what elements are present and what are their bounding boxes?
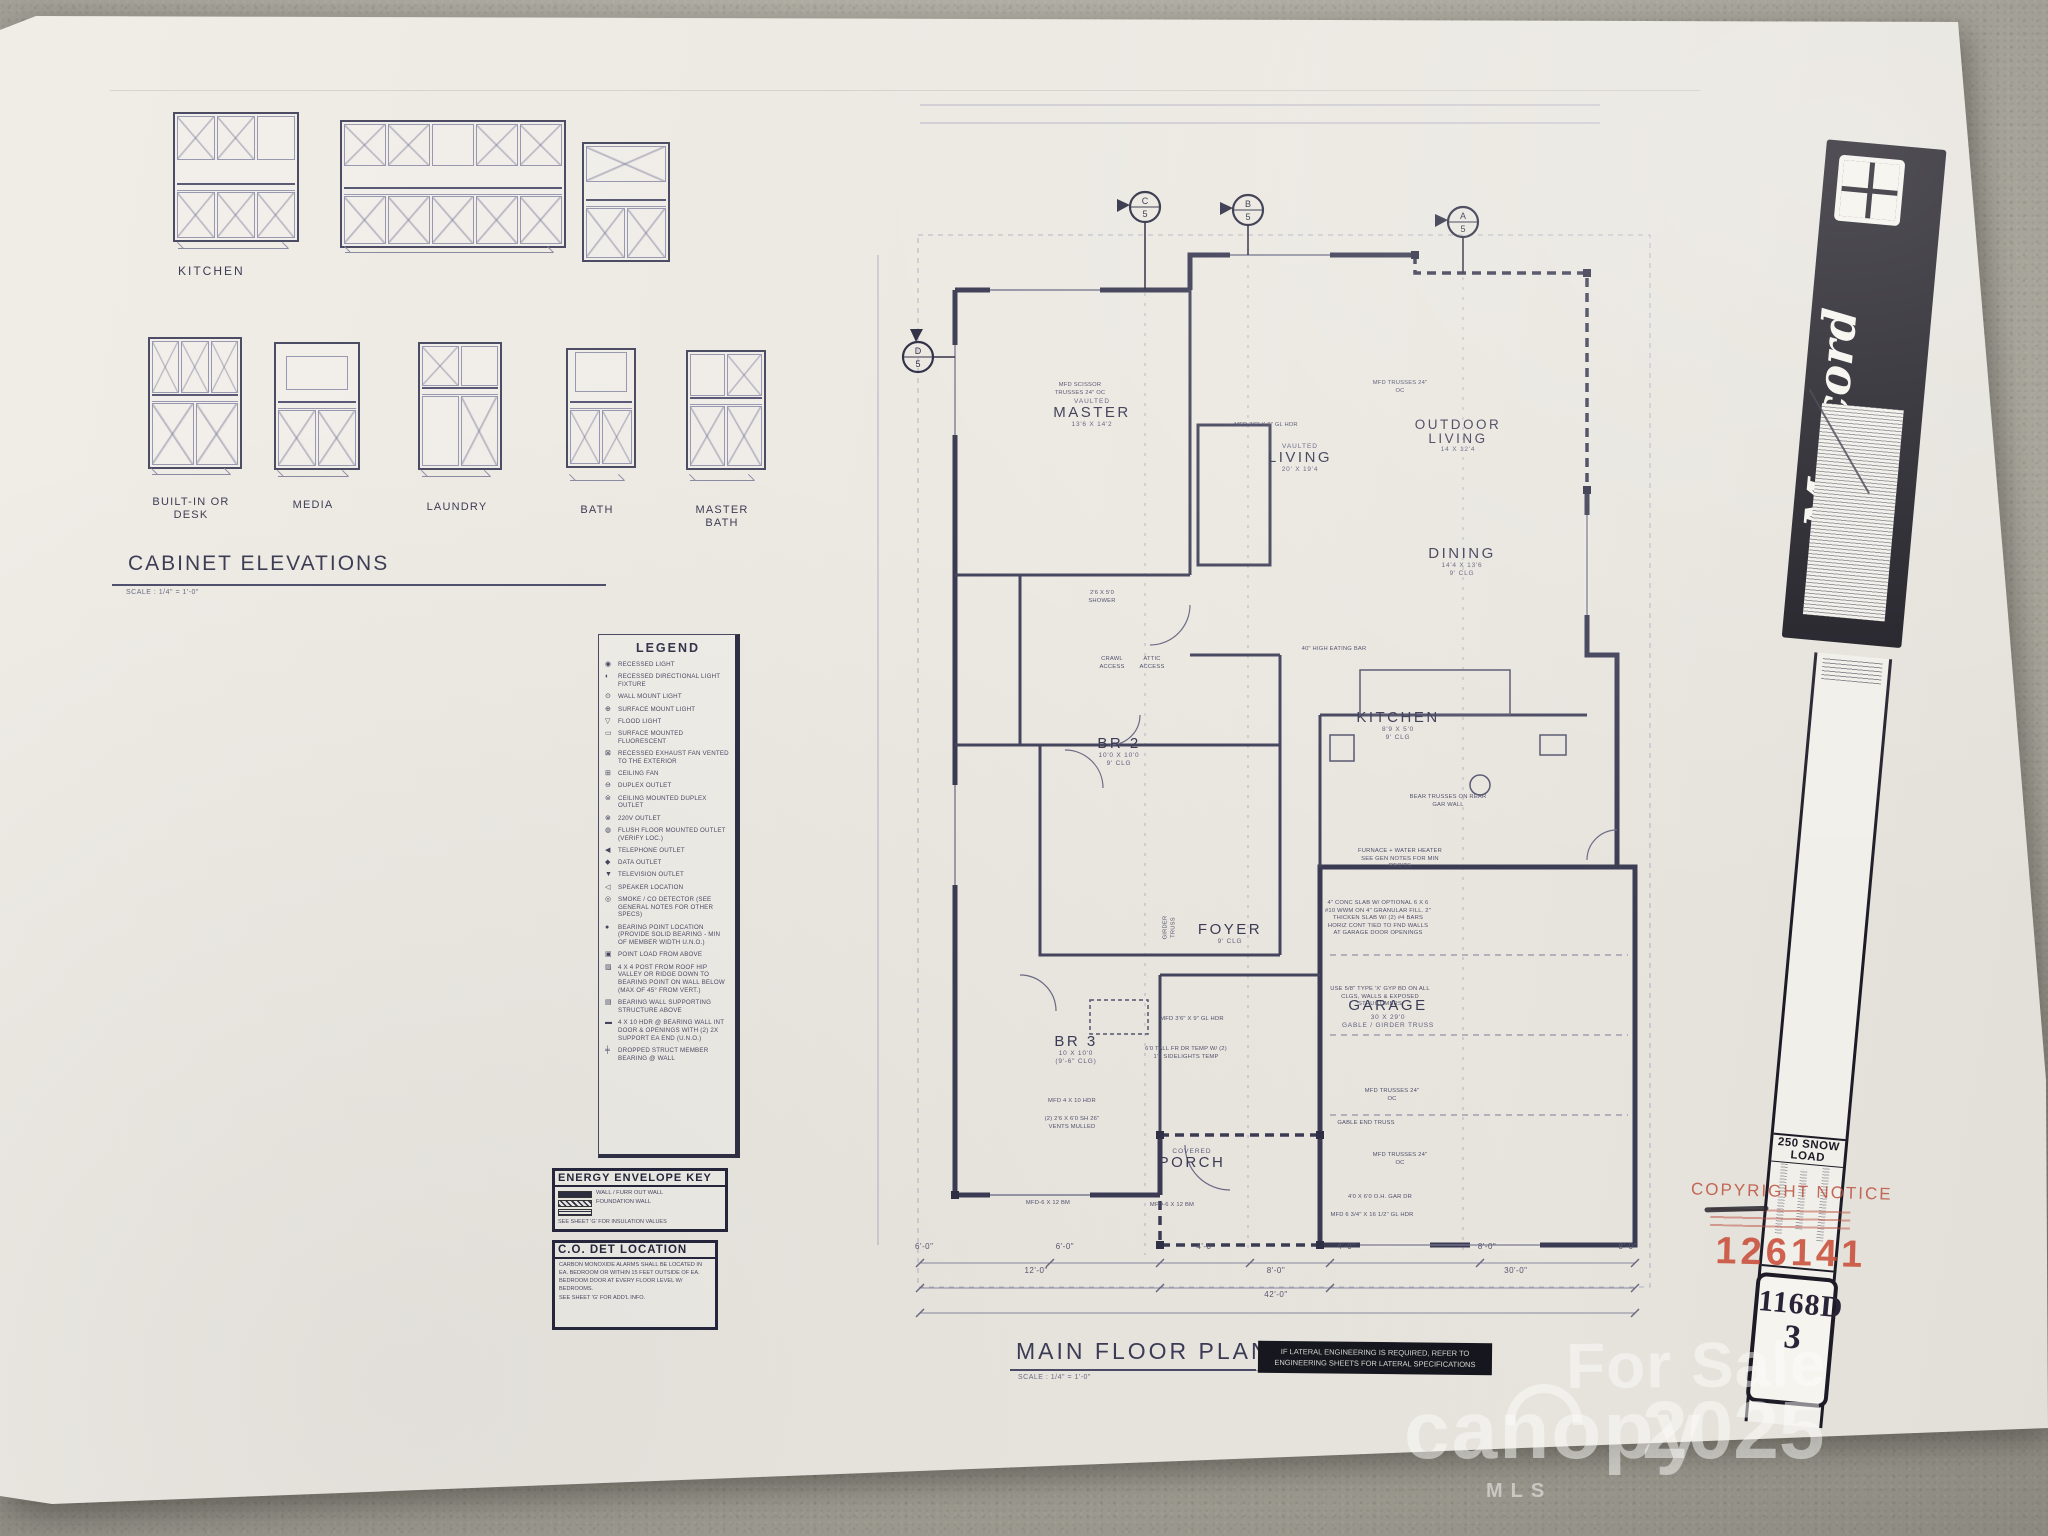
room-label-dining: DINING 14'4 X 13'6 9' CLG: [1428, 546, 1496, 579]
plan-annotation: MFD TRUSSES 24" OC: [1369, 380, 1431, 395]
cabinet-elevations-underline: [112, 584, 606, 586]
grid-bubble-letter: B: [1245, 199, 1251, 209]
dimension-line: [690, 480, 754, 481]
legend-symbol-icon: ◆: [605, 859, 618, 867]
bath-label: BATH: [562, 504, 632, 517]
cabinet-door: [344, 124, 386, 166]
window-pane: [1870, 193, 1898, 221]
legend-item: ⊙ WALL MOUNT LIGHT: [605, 693, 731, 701]
plan-annotation: 6'0 TALL FR DR TEMP W/ (2) 1'0 SIDELIGHT…: [1145, 1046, 1227, 1061]
cabinet-door: [432, 196, 474, 244]
vanity-door: [690, 406, 725, 466]
legend-item-label: DUPLEX OUTLET: [618, 782, 672, 790]
legend-item-label: TELEVISION OUTLET: [618, 871, 684, 879]
legend-item-label: RECESSED DIRECTIONAL LIGHT FIXTURE: [618, 673, 731, 689]
master-bath-label: MASTER BATH: [678, 504, 766, 529]
legend-item-label: DATA OUTLET: [618, 859, 662, 867]
legend-symbol-icon: ▼: [605, 871, 618, 879]
dimension-row-1: 6'-0"6'-0"4'-0"4'-0"8'-0"8'-0": [915, 1242, 1637, 1251]
cabinet-door: [422, 346, 459, 386]
window-pane: [1872, 163, 1900, 191]
dimension-row-2: 12'-0"8'-0"30'-0": [915, 1266, 1637, 1275]
legend-symbol-icon: ▨: [605, 964, 618, 995]
legend-item-label: TELEPHONE OUTLET: [618, 847, 685, 855]
plan-annotation: 2'6 X 5'0 SHOWER: [1076, 590, 1128, 605]
plan-annotation: CRAWL ACCESS: [1091, 656, 1133, 671]
legend-item: ◐ RECESSED DIRECTIONAL LIGHT FIXTURE: [605, 673, 731, 689]
window-logo-icon: [1834, 155, 1906, 227]
plan-annotation: MFD TRUSSES 24" OC: [1361, 1088, 1423, 1103]
legend-item: ⊠ RECESSED EXHAUST FAN VENTED TO THE EXT…: [605, 750, 731, 766]
legend-item-label: SPEAKER LOCATION: [618, 884, 683, 892]
cabinet-door: [520, 196, 562, 244]
plan-annotation: BEAR TRUSSES ON REAR GAR WALL: [1407, 794, 1489, 809]
window-pane: [1839, 190, 1867, 218]
legend-item-label: BEARING WALL SUPPORTING STRUCTURE ABOVE: [618, 999, 731, 1015]
legend-item: ◍ FLUSH FLOOR MOUNTED OUTLET (VERIFY LOC…: [605, 827, 731, 843]
plan-annotation: MFD-6 X 12 BM: [1012, 1200, 1084, 1208]
kitchen-elevation-2: [340, 120, 566, 248]
grid-bubble-number: 5: [1142, 209, 1147, 219]
cabinet-door: [476, 124, 518, 166]
legend-symbol-icon: ╪: [605, 1047, 618, 1063]
legend-symbol-icon: ▽: [605, 718, 618, 726]
cabinet-door: [344, 196, 386, 244]
legend-item-label: RECESSED EXHAUST FAN VENTED TO THE EXTER…: [618, 750, 731, 766]
laundry-elevation: [418, 342, 502, 470]
legend-symbol-icon: ▬: [605, 1019, 618, 1042]
vanity-door: [602, 410, 632, 464]
plan-annotation: USE 5/8" TYPE 'X' GYP BD ON ALL CLGS, WA…: [1330, 986, 1430, 1009]
dimension-label: 12'-0": [1024, 1266, 1047, 1275]
legend-item-label: BEARING POINT LOCATION (PROVIDE SOLID BE…: [618, 924, 731, 947]
cabinet-door: [152, 341, 179, 393]
cabinet-door: [520, 124, 562, 166]
plan-annotation: GABLE END TRUSS: [1324, 1120, 1408, 1128]
dimension-label: 6'-0": [1056, 1242, 1074, 1251]
tv-panel: [286, 356, 348, 390]
legend-item: ⊗ 220V OUTLET: [605, 815, 731, 823]
mirror-panel: [575, 352, 627, 392]
legend-item: ● BEARING POINT LOCATION (PROVIDE SOLID …: [605, 924, 731, 947]
cabinet-door: [217, 192, 255, 238]
legend-item: ▣ POINT LOAD FROM ABOVE: [605, 951, 731, 959]
media-elevation: [274, 342, 360, 470]
legend-item: ⊖ DUPLEX OUTLET: [605, 782, 731, 790]
grid-bubble-letter: C: [1142, 196, 1149, 206]
washer-front: [422, 396, 459, 466]
room-label-porch: COVERED PORCH: [1159, 1148, 1226, 1171]
energy-key-lines: WALL / FURR OUT WALL FOUNDATION WALL: [596, 1189, 663, 1218]
grid-bubble-letter: A: [1460, 211, 1466, 221]
dimension-label: 4'-0": [1196, 1242, 1214, 1251]
legend-symbol-icon: ◉: [605, 661, 618, 669]
lateral-engineering-note: IF LATERAL ENGINEERING IS REQUIRED, REFE…: [1258, 1341, 1492, 1375]
plan-annotation: (2) 2'6 X 6'0 SH 26" VENTS MULLED: [1036, 1116, 1108, 1131]
plan-annotation: 4" CONC SLAB W/ OPTIONAL 6 X 6 #10 WWM O…: [1324, 900, 1432, 938]
legend-item-label: SURFACE MOUNTED FLUORESCENT: [618, 730, 731, 746]
legend-item: ╪ DROPPED STRUCT MEMBER BEARING @ WALL: [605, 1047, 731, 1063]
energy-key-line: FOUNDATION WALL: [596, 1198, 663, 1207]
sheet-top-rule: [110, 90, 1700, 91]
legend-item: ◉ RECESSED LIGHT: [605, 661, 731, 669]
legend-symbol-icon: ▣: [605, 951, 618, 959]
license-fine-print: [1795, 394, 1911, 630]
legend-item-label: CEILING FAN: [618, 770, 659, 778]
grid-bubble-number: 5: [1460, 224, 1465, 234]
energy-envelope-key-title: ENERGY ENVELOPE KEY: [555, 1171, 725, 1187]
plan-annotation: ATTIC ACCESS: [1131, 656, 1173, 671]
floor-plan-drawing: C 5 B 5 A 5 D 5: [860, 95, 1660, 1345]
cabinet-door: [152, 403, 194, 465]
legend-item-label: SMOKE / CO DETECTOR (SEE GENERAL NOTES F…: [618, 896, 731, 919]
cabinet-door: [211, 341, 238, 393]
cabinet-door: [318, 410, 356, 466]
legend-item: ▽ FLOOD LIGHT: [605, 718, 731, 726]
legend-item: ◎ SMOKE / CO DETECTOR (SEE GENERAL NOTES…: [605, 896, 731, 919]
cabinet-door: [586, 146, 666, 182]
co-det-location-box: C.O. DET LOCATION CARBON MONOXIDE ALARMS…: [552, 1240, 718, 1330]
legend-symbol-icon: ●: [605, 924, 618, 947]
plan-annotation: MFD 3'6" X 9" GL HDR: [1156, 1016, 1228, 1024]
master-bath-elevation: [686, 350, 766, 470]
mascord-banner: Mascord COLLECTION: [1782, 139, 1947, 648]
legend-item-label: CEILING MOUNTED DUPLEX OUTLET: [618, 795, 731, 811]
cabinet-door: [388, 124, 430, 166]
dimension-line: [570, 480, 624, 481]
cabinet-door: [177, 116, 215, 160]
main-floor-plan-underline: [1010, 1369, 1256, 1371]
plan-number: 126141: [1715, 1230, 1890, 1278]
room-label-living: VAULTED LIVING 20' X 19'4: [1268, 443, 1332, 474]
legend-item-label: DROPPED STRUCT MEMBER BEARING @ WALL: [618, 1047, 731, 1063]
legend-item: ▨ 4 X 4 POST FROM ROOF HIP VALLEY OR RID…: [605, 964, 731, 995]
cabinet-door: [278, 410, 316, 466]
hatch-dotted: [558, 1209, 592, 1216]
legend-item-label: 4 X 4 POST FROM ROOF HIP VALLEY OR RIDGE…: [618, 964, 731, 995]
legend-symbol-icon: ▭: [605, 730, 618, 746]
legend-item: ⊞ CEILING FAN: [605, 770, 731, 778]
laundry-label: LAUNDRY: [412, 501, 502, 514]
dryer-front: [461, 396, 498, 466]
plan-annotation: MFD TRUSSES 24" OC: [1369, 1152, 1431, 1167]
legend-item: ▼ TELEVISION OUTLET: [605, 871, 731, 879]
energy-key-note: SEE SHEET 'G' FOR INSULATION VALUES: [555, 1218, 725, 1226]
co-det-note: SEE SHEET 'G' FOR ADD'L INFO.: [555, 1293, 715, 1303]
plan-annotation: 4'0 X 6'0 O.H. GAR DR: [1324, 1194, 1436, 1202]
legend-symbol-icon: ⊗: [605, 815, 618, 823]
legend-symbol-icon: ◐: [605, 673, 618, 689]
energy-key-line: WALL / FURR OUT WALL: [596, 1189, 663, 1198]
cabinet-door: [196, 403, 238, 465]
legend-item-label: POINT LOAD FROM ABOVE: [618, 951, 702, 959]
legend-symbol-icon: ◍: [605, 827, 618, 843]
legend-item-label: 4 X 10 HDR @ BEARING WALL INT DOOR & OPE…: [618, 1019, 731, 1042]
builtin-elevation: [148, 337, 242, 469]
window-pane: [1842, 160, 1870, 188]
cabinet-door: [388, 196, 430, 244]
dimension-label: 30'-0": [1504, 1266, 1527, 1275]
dimension-label: 4'-0": [1337, 1242, 1355, 1251]
main-floor-plan-title: MAIN FLOOR PLAN: [1016, 1338, 1271, 1365]
kitchen-elevation-1: [173, 112, 299, 242]
plan-annotation: MFD SCISSOR TRUSSES 24" OC: [1044, 382, 1116, 397]
legend-item-label: FLOOD LIGHT: [618, 718, 661, 726]
legend-symbol-icon: ⊙: [605, 693, 618, 701]
sheet-page-number: 3: [1754, 1318, 1831, 1359]
legend-item-label: 220V OUTLET: [618, 815, 661, 823]
legend-symbol-icon: ◁: [605, 884, 618, 892]
legend-item: ◀ TELEPHONE OUTLET: [605, 847, 731, 855]
dimension-line: [278, 476, 348, 477]
plan-annotation: 40" HIGH EATING BAR: [1278, 646, 1390, 654]
legend-item-label: FLUSH FLOOR MOUNTED OUTLET (VERIFY LOC.): [618, 827, 731, 843]
legend-item: ◁ SPEAKER LOCATION: [605, 884, 731, 892]
cabinet-elevations-title: CABINET ELEVATIONS: [128, 552, 389, 576]
dimension-label: 8'-0": [1619, 1242, 1637, 1251]
vanity-door: [570, 410, 600, 464]
dimension-row-3: 42'-0": [915, 1290, 1637, 1299]
room-label-br2: BR 2 10'0 X 10'0 9' CLG: [1097, 736, 1140, 769]
range-hood: [432, 124, 474, 166]
legend-title: LEGEND: [605, 641, 731, 655]
mirror-panel: [727, 354, 762, 396]
legend-symbol-icon: ◎: [605, 896, 618, 919]
main-floor-plan-scale: SCALE : 1/4" = 1'-0": [1018, 1374, 1091, 1381]
dimension-label: 8'-0": [1478, 1242, 1496, 1251]
legend-symbol-icon: ▤: [605, 999, 618, 1015]
dimension-label: 42'-0": [1264, 1290, 1287, 1299]
blueprint-paper: KITCHEN: [0, 0, 2048, 1536]
copyright-notice-title: COPYRIGHT NOTICE: [1691, 1179, 1891, 1204]
dimension-label: 8'-0": [1267, 1266, 1285, 1275]
legend-item-label: WALL MOUNT LIGHT: [618, 693, 682, 701]
dimension-line: [178, 248, 288, 249]
legend-box: LEGEND ◉ RECESSED LIGHT ◐ RECESSED DIREC…: [598, 634, 740, 1158]
legend-symbol-icon: ◀: [605, 847, 618, 855]
plan-annotation: GIRDER TRUSS: [1162, 906, 1177, 950]
plan-annotation: MFD 4 X 10 HDR: [1036, 1098, 1108, 1106]
legend-item: ◆ DATA OUTLET: [605, 859, 731, 867]
media-label: MEDIA: [272, 499, 354, 512]
co-det-title: C.O. DET LOCATION: [555, 1243, 715, 1259]
address-micro-text: [1821, 657, 1883, 684]
legend-item: ⊜ CEILING MOUNTED DUPLEX OUTLET: [605, 795, 731, 811]
cabinet-door: [627, 208, 666, 258]
legend-symbol-icon: ⊞: [605, 770, 618, 778]
grid-bubble-letter: D: [915, 346, 922, 356]
plan-annotation: FURNACE + WATER HEATER SEE GEN NOTES FOR…: [1352, 848, 1448, 871]
plan-annotation: MFD-6 X 12 BM: [1136, 1202, 1208, 1210]
dimension-line: [422, 476, 490, 477]
dimension-line: [345, 252, 553, 253]
legend-item: ▤ BEARING WALL SUPPORTING STRUCTURE ABOV…: [605, 999, 731, 1015]
copyright-stamp: COPYRIGHT NOTICE 126141: [1689, 1179, 1891, 1277]
legend-item-label: RECESSED LIGHT: [618, 661, 675, 669]
title-block-column: 250 SNOW LOAD 1168D 3: [1745, 652, 1893, 1428]
cabinet-elevations-scale: SCALE : 1/4" = 1'-0": [126, 589, 199, 596]
cabinet-door: [257, 192, 295, 238]
cabinet-door: [586, 208, 625, 258]
cabinet-door: [181, 341, 208, 393]
energy-envelope-key-box: ENERGY ENVELOPE KEY WALL / FURR OUT WALL…: [552, 1168, 728, 1232]
room-label-outdoor-living: OUTDOOR LIVING 14 X 12'4: [1398, 418, 1518, 455]
legend-item-label: SURFACE MOUNT LIGHT: [618, 706, 695, 714]
vanity-door: [727, 406, 762, 466]
photo-of-blueprint-sheet: KITCHEN: [0, 0, 2048, 1536]
tall-cabinet: [690, 354, 725, 396]
kitchen-elevation-3: [582, 142, 670, 262]
room-label-foyer: FOYER 9' CLG: [1198, 922, 1262, 946]
grid-bubble-number: 5: [1245, 212, 1250, 222]
cabinet-door: [257, 116, 295, 160]
sheet-number-box: 1168D 3: [1745, 1272, 1838, 1409]
grid-bubble-number: 5: [915, 359, 920, 369]
builtin-label: BUILT-IN OR DESK: [140, 496, 242, 521]
legend-symbol-icon: ⊠: [605, 750, 618, 766]
kitchen-elevation-label: KITCHEN: [178, 264, 245, 278]
cabinet-door: [461, 346, 498, 386]
room-label-master: VAULTED MASTER 13'6 X 14'2: [1053, 398, 1131, 429]
dimension-label: 6'-0": [915, 1242, 933, 1251]
legend-items: ◉ RECESSED LIGHT ◐ RECESSED DIRECTIONAL …: [605, 661, 731, 1062]
legend-symbol-icon: ⊕: [605, 706, 618, 714]
hatch-swatches: [558, 1189, 592, 1218]
co-det-body: CARBON MONOXIDE ALARMS SHALL BE LOCATED …: [555, 1259, 715, 1293]
cabinet-door: [177, 192, 215, 238]
bath-elevation: [566, 348, 636, 468]
legend-symbol-icon: ⊜: [605, 795, 618, 811]
legend-item: ▬ 4 X 10 HDR @ BEARING WALL INT DOOR & O…: [605, 1019, 731, 1042]
legend-item: ▭ SURFACE MOUNTED FLUORESCENT: [605, 730, 731, 746]
plan-annotation: MFD 3'6" X 9" GL HDR: [1230, 422, 1302, 430]
cabinet-door: [217, 116, 255, 160]
legend-item: ⊕ SURFACE MOUNT LIGHT: [605, 706, 731, 714]
hatch-diagonal: [558, 1200, 592, 1207]
cabinet-door: [476, 196, 518, 244]
dimension-line: [152, 474, 230, 475]
room-label-br3: BR 3 10 X 10'0 (9'-6" CLG): [1054, 1034, 1097, 1067]
hatch-solid: [558, 1191, 592, 1198]
legend-symbol-icon: ⊖: [605, 782, 618, 790]
plan-annotation: MFD 6 3/4" X 16 1/2" GL HDR: [1310, 1212, 1434, 1220]
room-label-kitchen: KITCHEN 8'9 X 5'0 9' CLG: [1356, 710, 1439, 743]
